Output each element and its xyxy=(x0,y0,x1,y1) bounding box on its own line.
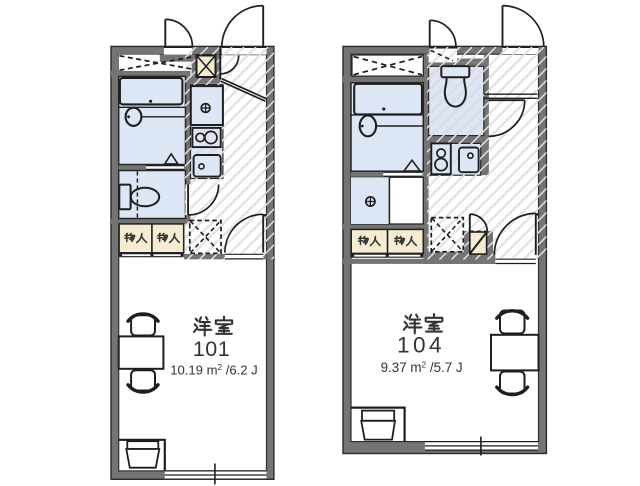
svg-text:101: 101 xyxy=(193,337,230,361)
svg-text:104: 104 xyxy=(397,333,445,358)
svg-text:10.19 m2 /6.2 J: 10.19 m2 /6.2 J xyxy=(170,363,258,378)
